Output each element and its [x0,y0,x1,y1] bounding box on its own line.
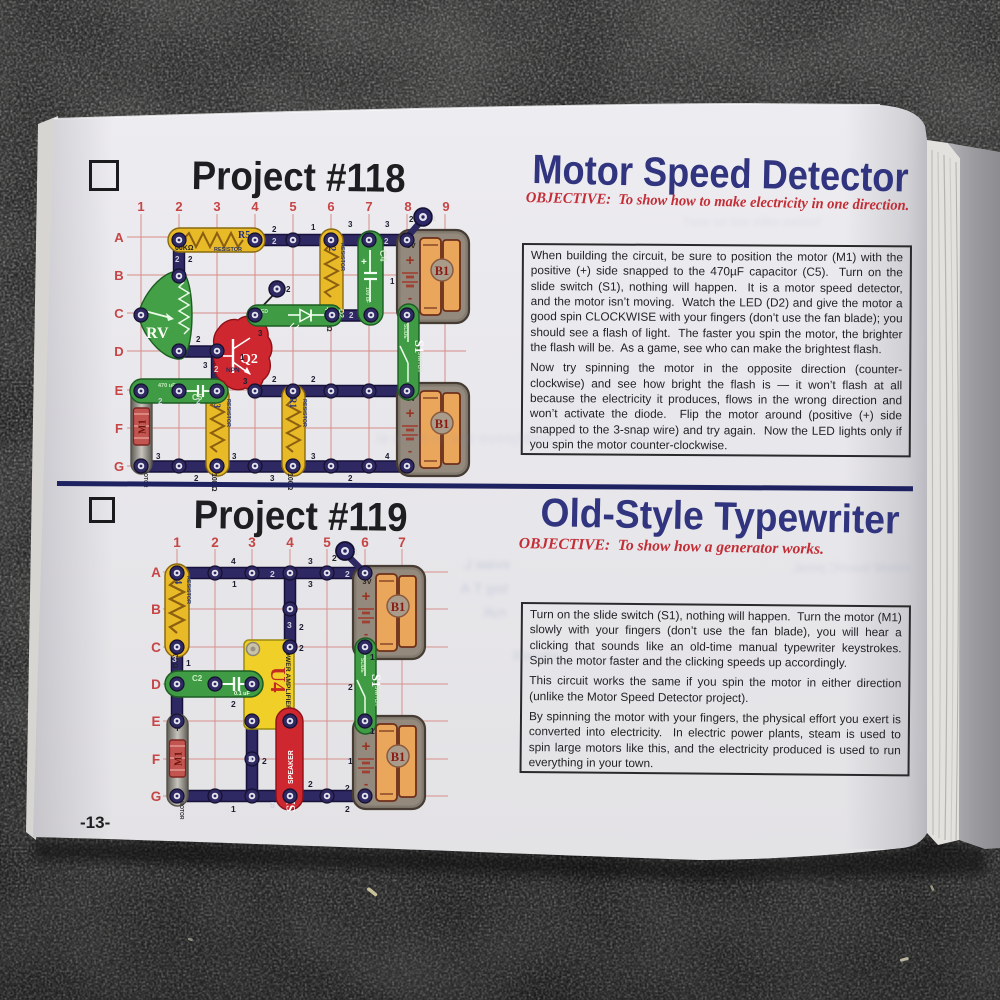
svg-text:RESISTOR: RESISTOR [225,399,231,427]
svg-text:2: 2 [214,365,219,374]
svg-text:2: 2 [262,756,267,766]
svg-text:E: E [151,714,160,729]
svg-text:2: 2 [175,199,182,214]
svg-text:F: F [115,421,123,436]
svg-text:C4: C4 [378,250,388,262]
svg-text:E: E [115,383,124,398]
svg-text:6: 6 [327,199,334,214]
svg-text:2: 2 [299,643,304,653]
svg-text:2: 2 [345,783,350,793]
svg-text:G: G [151,789,162,804]
svg-text:2: 2 [196,335,201,344]
svg-text:2: 2 [345,804,350,814]
svg-text:3: 3 [172,654,177,664]
svg-text:1: 1 [432,214,436,223]
svg-text:5: 5 [270,800,275,810]
svg-text:2: 2 [188,255,193,264]
svg-text:1: 1 [240,353,245,362]
svg-text:SWITCH: SWITCH [373,686,379,706]
svg-text:RESISTOR: RESISTOR [339,243,345,271]
svg-text:NPN: NPN [226,367,240,374]
svg-text:3: 3 [308,579,313,589]
svg-text:1: 1 [354,548,359,557]
svg-text:1: 1 [232,579,237,589]
svg-text:3: 3 [213,199,220,214]
svg-text:C2: C2 [192,674,203,683]
svg-text:MOTOR: MOTOR [178,801,184,820]
svg-text:+: + [361,257,367,268]
svg-text:2: 2 [158,397,163,406]
svg-text:2: 2 [270,569,275,579]
svg-text:2: 2 [231,699,236,709]
svg-text:2: 2 [175,255,180,264]
svg-text:2: 2 [348,682,353,692]
svg-text:RESISTOR: RESISTOR [185,576,191,604]
svg-text:2: 2 [196,397,201,406]
svg-text:3: 3 [203,361,208,370]
svg-text:2: 2 [308,779,313,789]
svg-text:SLIDE: SLIDE [402,324,408,339]
svg-text:1: 1 [137,199,144,214]
svg-text:2: 2 [384,237,389,246]
svg-text:2: 2 [311,375,316,384]
svg-text:SWITCH: SWITCH [416,352,422,372]
svg-text:G: G [114,459,124,474]
svg-text:SLIDE: SLIDE [359,658,365,673]
svg-text:3: 3 [258,329,263,338]
svg-text:D: D [114,344,123,359]
svg-text:1: 1 [231,804,236,814]
svg-text:POWER AMPLIFIER: POWER AMPLIFIER [284,646,291,710]
svg-text:3: 3 [311,452,316,461]
svg-text:3: 3 [248,754,253,764]
svg-text:SPEAKER: SPEAKER [288,750,295,784]
svg-text:0.1 uF: 0.1 uF [234,691,251,697]
svg-text:R1: R1 [288,397,298,408]
svg-text:2: 2 [349,311,354,320]
svg-text:100 uF: 100 uF [364,287,370,303]
svg-text:B: B [114,268,123,283]
svg-text:3: 3 [287,620,292,630]
svg-text:2: 2 [345,569,350,579]
svg-text:1: 1 [370,726,375,736]
svg-text:1: 1 [311,223,316,232]
svg-text:5: 5 [289,199,296,214]
svg-text:2: 2 [409,215,414,224]
svg-text:3: 3 [308,556,313,566]
svg-text:4: 4 [251,199,259,214]
svg-text:2: 2 [332,553,337,563]
svg-text:1: 1 [173,535,181,550]
svg-text:RV: RV [146,325,169,342]
svg-text:F: F [152,752,160,767]
svg-text:A: A [151,565,161,580]
svg-text:M1: M1 [138,420,149,434]
svg-text:1: 1 [390,277,395,286]
svg-text:1: 1 [348,756,353,766]
svg-text:4: 4 [385,452,390,461]
svg-text:3: 3 [243,377,248,386]
svg-text:RESISTOR: RESISTOR [214,247,242,253]
svg-text:2: 2 [299,622,304,632]
svg-text:4: 4 [231,556,236,566]
svg-text:A: A [114,230,124,245]
svg-text:M1: M1 [174,752,185,766]
svg-text:RESISTOR: RESISTOR [301,399,307,427]
svg-text:D: D [151,677,161,692]
svg-text:8: 8 [404,199,411,214]
svg-text:3: 3 [232,452,237,461]
svg-text:B: B [151,602,161,617]
svg-text:2: 2 [286,285,291,294]
svg-text:2: 2 [348,474,353,483]
svg-text:3: 3 [156,452,161,461]
svg-text:C: C [114,306,124,321]
svg-text:3: 3 [348,220,353,229]
svg-text:9: 9 [442,199,449,214]
svg-text:3: 3 [385,220,390,229]
svg-text:2: 2 [272,237,277,246]
svg-text:1: 1 [370,652,375,662]
svg-text:2: 2 [272,225,277,234]
svg-text:2: 2 [272,375,277,384]
svg-text:1: 1 [186,658,191,668]
svg-text:C: C [151,640,161,655]
